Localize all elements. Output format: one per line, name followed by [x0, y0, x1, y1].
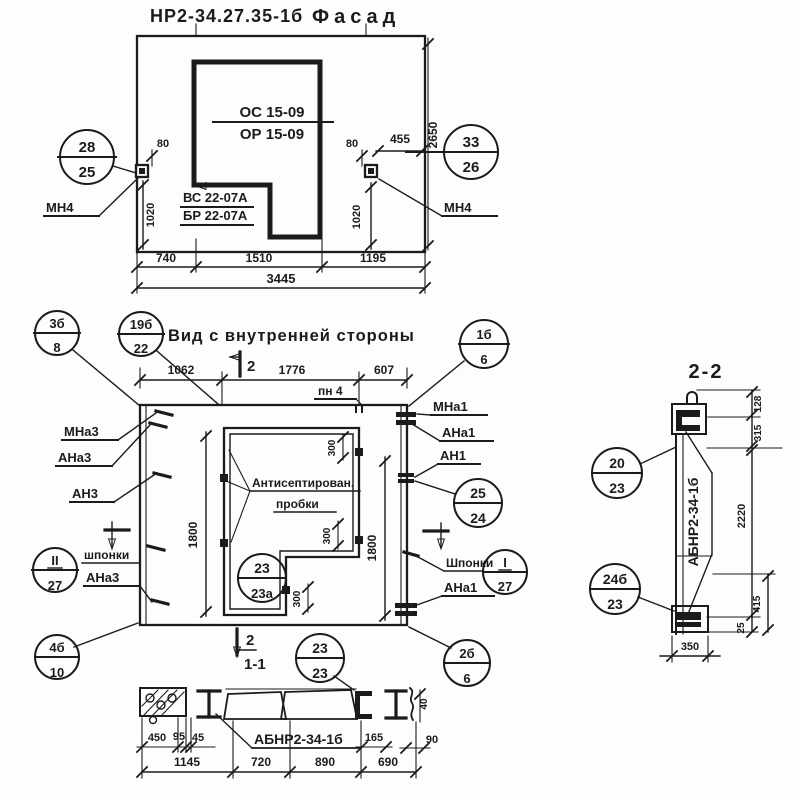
label-mna3: МНа3 — [62, 413, 156, 440]
dim-1510: 1510 — [246, 251, 273, 265]
channel-profile-left — [198, 691, 220, 717]
callout-i-27: I 27 — [483, 550, 527, 594]
callout-top: II — [51, 553, 58, 568]
dim-40: 40 — [415, 689, 430, 710]
callout-33-26: 33 26 — [406, 125, 498, 179]
label-pn4: пн 4 — [315, 384, 362, 412]
dim-80-right: 80 — [346, 138, 358, 150]
dim-3445: 3445 — [267, 271, 296, 286]
callout-top: 3б — [49, 316, 64, 331]
dim-415: 415 — [752, 595, 763, 612]
beam-label-vertical: АБНР2-34-1б — [685, 477, 701, 566]
callout-top: 25 — [470, 485, 486, 501]
dim-45: 45 — [192, 732, 204, 744]
dim-text: 1800 — [186, 521, 200, 548]
callout-bottom: 6 — [463, 671, 470, 686]
dim-740: 740 — [156, 251, 176, 265]
label-an3: АН3 — [70, 475, 154, 502]
dim-300-mid: 300 — [322, 519, 343, 551]
dim-1020-left: 1020 — [138, 180, 157, 250]
callout-top: 33 — [463, 134, 480, 151]
facade-stamp: ОС 15-09 ОР 15-09 — [213, 104, 333, 143]
channel-profile-end — [386, 691, 406, 718]
callout-23-23: 23 23 — [296, 634, 354, 690]
dim-text: 1020 — [351, 205, 363, 229]
callout-bottom: 23а — [251, 586, 273, 601]
lifting-loop — [687, 392, 697, 404]
callout-bottom: 27 — [48, 578, 62, 593]
dim-80-left: 80 — [157, 138, 169, 150]
label-text: АНа3 — [86, 570, 119, 585]
dim-25: 25 — [736, 622, 747, 634]
anchor-label: МН4 — [46, 200, 74, 215]
callout-28-25: 28 25 — [58, 130, 136, 184]
label-ana1-bottom: АНа1 — [414, 580, 494, 606]
callout-3b-8: 3б 8 — [34, 311, 140, 406]
section-2-2-title: 2-2 — [689, 361, 724, 383]
facade-anchor-right: 80 — [346, 138, 377, 177]
dim-1195: 1195 — [360, 251, 386, 265]
callout-top: I — [503, 555, 507, 570]
label-text: МНа1 — [433, 399, 468, 414]
inner-opening-inline — [230, 434, 353, 609]
label-text: Шпонки — [446, 556, 493, 570]
dim-690: 690 — [378, 755, 398, 769]
edge-anchor-bars — [148, 411, 418, 616]
facade-stamp2: ВС 22-07А БР 22-07А — [181, 183, 253, 225]
dim-300-top: 300 — [327, 432, 348, 463]
facade-title-code: НР2-34.27.35-1б — [150, 6, 303, 26]
label-an1: АН1 — [415, 448, 480, 477]
label-text: АНа3 — [58, 450, 91, 465]
label-text: АНа1 — [444, 580, 477, 595]
callout-bottom: 6 — [480, 352, 487, 367]
dim-2220: 2220 — [736, 504, 748, 528]
callout-25-24: 25 24 — [415, 479, 502, 527]
dim-1776: 1776 — [279, 363, 306, 377]
callout-bottom: 25 — [79, 164, 96, 181]
dim-text: 300 — [292, 590, 303, 607]
callout-top: 1б — [476, 327, 491, 342]
blueprint-sheet: НР2-34.27.35-1б Фасад ОС 15-09 ОР 15-09 … — [0, 0, 800, 800]
section-2-2: 2-2 АБНР2-34-1б 128 315 — [590, 361, 782, 662]
wood-block-1 — [224, 692, 286, 719]
section-1-marker-left — [105, 522, 129, 549]
beam-label: АБНР2-34-1б — [254, 731, 343, 747]
inner-view-title: Вид с внутренней стороны — [168, 327, 415, 345]
dim-1020-right: 1020 — [351, 182, 376, 250]
facade-title-name: Фасад — [312, 6, 400, 28]
dim-1062: 1062 — [168, 363, 195, 377]
facade-bottom-dims: 740 1510 1195 3445 — [132, 239, 430, 293]
callout-24b-23: 24б 23 — [590, 564, 674, 614]
dim-1800-left: 1800 — [186, 431, 211, 617]
callout-bottom: 8 — [53, 340, 60, 355]
facade-view: НР2-34.27.35-1б Фасад ОС 15-09 ОР 15-09 … — [44, 6, 498, 293]
inner-view: Вид с внутренней стороны 3б 8 19б 22 1б … — [32, 311, 527, 690]
dim-128: 128 — [753, 395, 764, 412]
callout-1b-6: 1б 6 — [409, 320, 509, 406]
dim-text: 455 — [390, 132, 410, 146]
dim-text: 2650 — [426, 121, 440, 148]
callout-top: 2б — [459, 646, 474, 661]
section-1-1: 40 АБНР2-34-1б 450 95 45 165 90 1145 — [137, 688, 438, 778]
callout-top: 24б — [603, 571, 628, 587]
dim-text: 40 — [419, 698, 430, 710]
dim-300-bottom: 300 — [292, 582, 313, 614]
channel-profile-right — [355, 691, 372, 719]
section-1-1-label: 1-1 — [244, 656, 266, 673]
marker-number: 2 — [247, 358, 255, 375]
callout-bottom: 26 — [463, 159, 480, 176]
label-text: МНа3 — [64, 424, 99, 439]
callout-top: 23 — [254, 560, 270, 576]
small-dims-left: 450 95 45 — [137, 731, 215, 752]
section-2-marker-bottom: 2 — [234, 629, 256, 657]
callout-23-23a: 23 23а — [238, 554, 286, 602]
callout-top: 23 — [312, 640, 328, 656]
stamp-top: ОС 15-09 — [239, 104, 304, 121]
label-text: АН1 — [440, 448, 466, 463]
dim-text: 300 — [322, 527, 333, 544]
dim-1800-right: 1800 — [365, 456, 390, 621]
dim-95: 95 — [173, 731, 185, 743]
facade-anchor-left: 80 — [136, 138, 169, 177]
callout-bottom: 24 — [470, 510, 486, 526]
wood-block-2 — [281, 690, 357, 719]
callout-2b-6: 2б 6 — [409, 627, 490, 686]
callout-top: 19б — [130, 317, 153, 332]
dim-text: 1800 — [365, 534, 379, 561]
section-2-marker-top: 2 — [230, 352, 255, 376]
callout-20-23: 20 23 — [592, 447, 676, 498]
callout-bottom: 22 — [134, 341, 148, 356]
panel-drawing: НР2-34.27.35-1б Фасад ОС 15-09 ОР 15-09 … — [0, 0, 800, 800]
dim-1145: 1145 — [174, 755, 200, 769]
callout-ii-27: II 27 — [32, 548, 78, 593]
inner-opening-outline — [224, 428, 359, 615]
dim-890: 890 — [315, 755, 335, 769]
callout-top: 4б — [49, 640, 64, 655]
callout-bottom: 27 — [498, 579, 512, 594]
top-channel-detail — [672, 404, 706, 434]
label-text: АН3 — [72, 486, 98, 501]
label-mn4-right: МН4 — [379, 179, 497, 216]
dim-90: 90 — [426, 734, 438, 746]
callout-top: 28 — [79, 139, 96, 156]
dim-720: 720 — [251, 755, 271, 769]
label-ana1-top: АНа1 — [412, 424, 493, 441]
dim-607: 607 — [374, 363, 394, 377]
note-line1: Антисептирован. — [252, 476, 354, 490]
callout-bottom: 23 — [609, 480, 625, 496]
dim-165: 165 — [365, 732, 383, 744]
callout-bottom: 23 — [607, 596, 623, 612]
callout-bottom: 10 — [50, 665, 64, 680]
inner-panel-outline — [140, 405, 407, 625]
dim-450: 450 — [148, 732, 166, 744]
stamp2-top: ВС 22-07А — [183, 190, 248, 205]
dim-text: 1020 — [145, 203, 157, 227]
stamp-bottom: ОР 15-09 — [240, 126, 304, 143]
small-dims-right: 165 90 — [356, 732, 438, 753]
label-text: АНа1 — [442, 425, 475, 440]
label-text: шпонки — [84, 548, 129, 562]
label-ana3-bottom: АНа3 — [84, 570, 152, 602]
label-shponki-right: Шпонки — [416, 556, 493, 571]
note-antiseptic: Антисептирован. пробки — [226, 450, 360, 542]
dim-350: 350 — [681, 641, 699, 653]
callout-top: 20 — [609, 455, 625, 471]
facade-panel-outline — [137, 36, 425, 252]
note-line2: пробки — [276, 497, 319, 511]
anchor-label: МН4 — [444, 200, 472, 215]
marker-number: 2 — [246, 632, 254, 649]
concrete-block — [140, 688, 186, 724]
section-1-marker-right — [424, 523, 448, 549]
stamp2-bottom: БР 22-07А — [183, 208, 248, 223]
label-shponki-left: шпонки — [82, 548, 140, 563]
label-mna1: МНа1 — [417, 399, 487, 415]
inner-top-dims: 1062 1776 607 — [135, 363, 412, 404]
dim-315: 315 — [753, 424, 764, 441]
callout-bottom: 23 — [312, 665, 328, 681]
callout-19b-22: 19б 22 — [118, 312, 218, 404]
label-text: пн 4 — [318, 384, 343, 398]
callout-4b-10: 4б 10 — [35, 623, 138, 680]
dim-text: 300 — [327, 439, 338, 456]
